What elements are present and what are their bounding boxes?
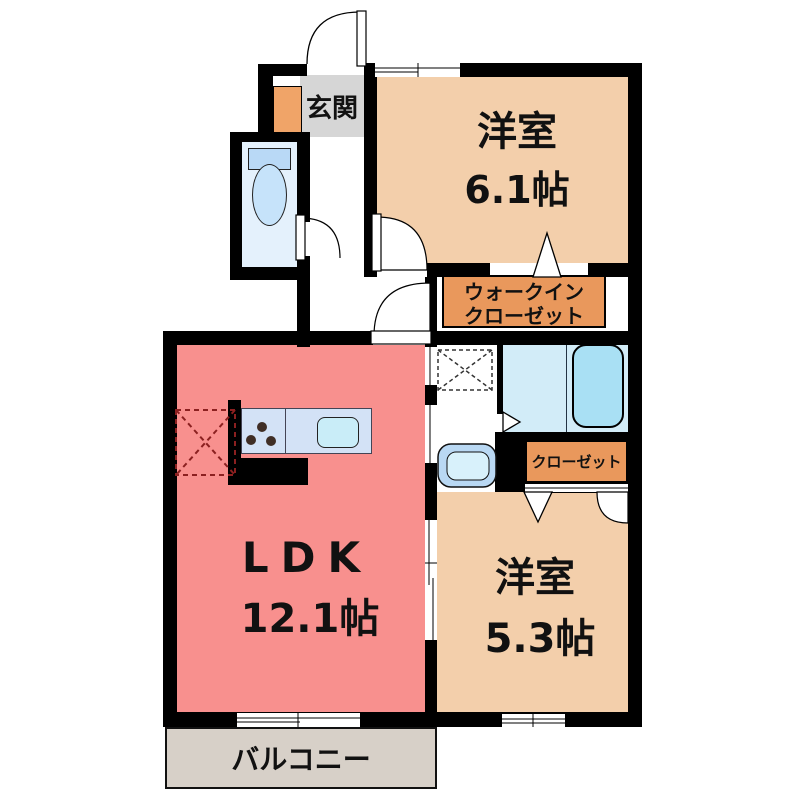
- floor-plan: 玄関 洋室 6.1帖 ウォークイン クローゼット クローゼット LDK 12.1…: [0, 0, 800, 800]
- toilet-bowl: [252, 164, 287, 226]
- ldk-door-leaf: [371, 331, 431, 344]
- wic-label-line2: クローゼット: [442, 302, 606, 326]
- wall-toilet-right-upper: [297, 142, 310, 222]
- washing-machine-space: [438, 350, 492, 390]
- genkan-label: 玄関: [300, 75, 364, 137]
- wall-ldk-top-right: [427, 331, 642, 345]
- bedroom1-size: 6.1帖: [417, 163, 617, 209]
- closet-label: クローゼット: [525, 440, 628, 483]
- wall-toilet-top: [230, 132, 310, 142]
- bedroom2-name: 洋室: [435, 551, 635, 597]
- wic-label-line1: ウォークイン: [442, 278, 606, 302]
- wall-hall-bedroom1: [364, 63, 377, 277]
- wall-kitchen-horizontal: [228, 458, 308, 485]
- wall-bath-left: [497, 338, 503, 414]
- bedroom1-name: 洋室: [417, 105, 617, 151]
- wall-mid-vertical-b: [425, 385, 437, 405]
- entry-door-arc: [307, 12, 360, 64]
- kitchen-sink: [317, 417, 359, 448]
- wall-outer-bottom: [163, 712, 642, 727]
- closet-front-track: [525, 483, 628, 493]
- wall-mid-vertical-c: [425, 463, 437, 520]
- entry-door-leaf: [357, 11, 366, 66]
- ldk-floor: [177, 345, 425, 712]
- wall-entrance-left: [258, 64, 273, 140]
- wall-toilet-left: [230, 132, 242, 280]
- wall-mid-vertical-d: [425, 640, 437, 712]
- wall-top-right: [460, 63, 642, 77]
- bedroom2-size: 5.3帖: [440, 612, 640, 658]
- slider-washroom-a: [425, 347, 437, 385]
- slider-washroom-b: [425, 405, 437, 463]
- bathtub: [572, 344, 624, 428]
- ldk-name: LDK: [207, 533, 407, 581]
- wall-ldk-top-left: [163, 331, 373, 345]
- wall-outer-left: [163, 331, 177, 727]
- shoe-cabinet: [273, 86, 302, 133]
- ldk-door-swing: [374, 283, 430, 336]
- bath-divider-line: [566, 340, 567, 432]
- wall-mid-vertical-a: [425, 277, 437, 347]
- washbasin: [438, 444, 496, 487]
- ldk-size: 12.1帖: [200, 592, 420, 638]
- toilet-door-arc: [301, 218, 340, 258]
- window-bedroom2-bottom: [502, 714, 565, 727]
- window-balcony-slider: [237, 713, 360, 727]
- balcony-label: バルコニー: [165, 730, 437, 786]
- kitchen-counter-divider: [285, 408, 286, 454]
- window-bedroom1-top: [375, 63, 460, 77]
- wall-bedroom1-bottom-b: [588, 263, 642, 277]
